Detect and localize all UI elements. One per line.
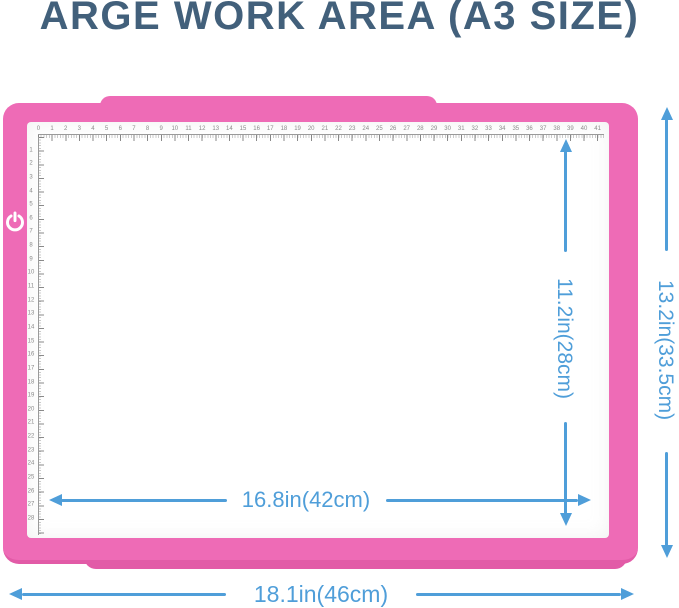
ruler-top-tick-label: 1 [50,126,53,133]
ruler-left-tick-label: 8 [29,243,32,250]
page-title: ARGE WORK AREA (A3 SIZE) [0,0,679,39]
arrow-line [665,119,668,251]
ruler-left-tick-label: 12 [28,297,35,304]
ruler-top-tick-label: 22 [335,126,342,133]
ruler-top-tick-label: 8 [146,126,149,133]
product-dimension-diagram: ARGE WORK AREA (A3 SIZE) 012345678910111… [0,0,679,608]
arrow-line [61,499,227,502]
ruler-left-tick-label: 25 [28,475,35,482]
ruler-top-tick-label: 37 [540,126,547,133]
ruler-top-tick-label: 36 [526,126,533,133]
ruler-top-tick-label: 25 [376,126,383,133]
ruler-top-tick-label: 41 [594,126,601,133]
ruler-left-tick-label: 19 [28,393,35,400]
ruler-top-tick-label: 9 [159,126,162,133]
ruler-top-tick-label: 13 [212,126,219,133]
ruler-left-tick-label: 18 [28,379,35,386]
ruler-top-tick-label: 3 [78,126,81,133]
ruler-left-tick-label: 24 [28,461,35,468]
ruler-top-tick-label: 24 [362,126,369,133]
ruler-top-tick-label: 0 [37,126,40,133]
ruler-left-tick-label: 11 [28,284,34,291]
ruler-top-tick-label: 14 [226,126,233,133]
outer-width-label: 18.1in(46cm) [226,581,416,608]
ruler-left-tick-label: 26 [28,488,35,495]
ruler-left-tick-label: 27 [28,502,35,509]
ruler-left-tick-label: 9 [29,256,32,263]
outer-height-label: 13.2in(33.5cm) [653,248,677,452]
ruler-left-tick-label: 4 [29,188,32,195]
ruler-left-tick-label: 28 [28,515,35,522]
ruler-left-tick-label: 2 [29,161,32,168]
ruler-top-tick-label: 7 [132,126,135,133]
ruler-left-tick-label: 6 [29,215,32,222]
ruler-top-tick-label: 28 [417,126,424,133]
ruler-top-tick-label: 38 [553,126,560,133]
ruler-left-tick-label: 10 [28,270,35,277]
arrow-down-icon [560,513,572,526]
work-area-surface [27,122,609,538]
ruler-top-tick-label: 34 [499,126,506,133]
ruler-left-tick-label: 3 [29,174,32,181]
power-icon [4,211,26,233]
ruler-left-tick-label: 22 [28,434,35,441]
ruler-top-tick-label: 17 [267,126,274,133]
ruler-top-tick-label: 29 [431,126,438,133]
ruler-top [38,134,604,141]
ruler-top-tick-label: 30 [444,126,451,133]
ruler-top-tick-label: 40 [581,126,588,133]
arrow-line [386,499,578,502]
ruler-left-tick-label: 1 [29,147,32,154]
ruler-top-tick-label: 27 [403,126,410,133]
ruler-top-tick-label: 4 [91,126,94,133]
arrow-up-icon [661,107,673,120]
arrow-line [564,150,567,252]
ruler-top-tick-label: 11 [185,126,191,133]
arrow-left-icon [9,588,22,600]
arrow-line [416,593,621,596]
ruler-top-tick-label: 5 [105,126,108,133]
ruler-left-tick-label: 13 [28,311,35,318]
ruler-top-tick-label: 33 [485,126,492,133]
arrow-right-icon [578,494,591,506]
ruler-left-tick-label: 20 [28,406,35,413]
ruler-top-tick-label: 2 [64,126,67,133]
ruler-left [38,137,44,535]
ruler-top-tick-label: 32 [472,126,479,133]
ruler-left-tick-label: 23 [28,447,35,454]
ruler-left-tick-label: 16 [28,352,35,359]
work-height-label: 11.2in(28cm) [552,250,576,426]
ruler-top-tick-label: 12 [199,126,206,133]
ruler-top-tick-label: 23 [349,126,356,133]
arrow-down-icon [661,545,673,558]
ruler-top-tick-label: 21 [321,126,328,133]
ruler-top-tick-label: 20 [308,126,315,133]
ruler-top-tick-label: 6 [119,126,122,133]
arrow-right-icon [621,588,634,600]
ruler-top-tick-label: 15 [240,126,247,133]
ruler-left-tick-label: 7 [29,229,32,236]
ruler-top-tick-label: 31 [458,126,465,133]
ruler-top-tick-label: 16 [253,126,260,133]
ruler-top-tick-label: 18 [281,126,288,133]
ruler-left-tick-label: 15 [28,338,35,345]
arrow-line [22,593,226,596]
ruler-top-tick-label: 35 [512,126,519,133]
ruler-top-tick-label: 26 [390,126,397,133]
ruler-left-tick-label: 17 [28,365,35,372]
ruler-left-tick-label: 14 [28,324,35,331]
ruler-top-tick-label: 10 [171,126,178,133]
ruler-left-tick-label: 5 [29,202,32,209]
arrow-line [665,452,668,546]
ruler-top-tick-label: 19 [294,126,301,133]
ruler-top-tick-label: 39 [567,126,574,133]
work-width-label: 16.8in(42cm) [227,487,385,513]
ruler-left-tick-label: 21 [28,420,35,427]
